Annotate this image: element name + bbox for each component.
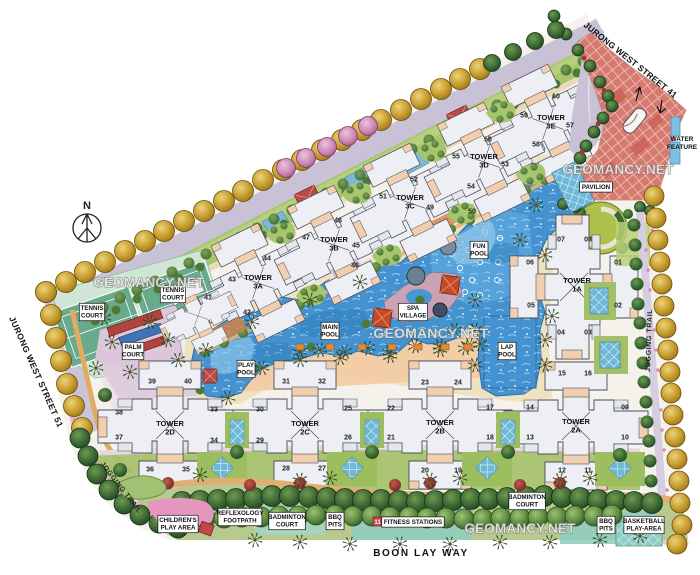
- svg-text:34: 34: [210, 438, 218, 445]
- svg-text:PITS: PITS: [328, 521, 342, 528]
- svg-text:27: 27: [318, 466, 326, 473]
- svg-text:14: 14: [526, 405, 534, 412]
- svg-text:POOL: POOL: [237, 369, 255, 376]
- svg-text:WATER: WATER: [671, 136, 694, 143]
- svg-text:BADMINTON: BADMINTON: [268, 514, 306, 521]
- svg-text:12: 12: [558, 468, 566, 475]
- svg-text:41: 41: [204, 295, 212, 302]
- svg-text:43: 43: [228, 277, 236, 284]
- svg-text:08: 08: [584, 237, 592, 244]
- svg-text:BOON LAY WAY: BOON LAY WAY: [373, 548, 469, 559]
- svg-text:GEOMANCY.NET: GEOMANCY.NET: [562, 162, 674, 177]
- svg-text:35: 35: [182, 467, 190, 474]
- svg-text:POOL: POOL: [321, 331, 339, 338]
- svg-text:GEOMANCY.NET: GEOMANCY.NET: [93, 275, 205, 290]
- svg-text:55: 55: [452, 154, 460, 161]
- svg-text:PITS: PITS: [599, 525, 613, 532]
- svg-text:COURT: COURT: [162, 294, 184, 301]
- svg-text:TENNIS: TENNIS: [81, 305, 104, 312]
- svg-text:29: 29: [256, 438, 264, 445]
- svg-text:05: 05: [527, 303, 535, 310]
- svg-text:GEOMANCY.NET: GEOMANCY.NET: [464, 521, 576, 536]
- svg-text:20: 20: [421, 468, 429, 475]
- svg-text:SPA: SPA: [407, 305, 420, 312]
- svg-text:GEOMANCY.NET: GEOMANCY.NET: [373, 325, 488, 341]
- svg-text:38: 38: [115, 410, 123, 417]
- svg-text:2A: 2A: [571, 426, 581, 435]
- svg-text:3D: 3D: [479, 161, 489, 170]
- svg-text:42: 42: [243, 310, 251, 317]
- svg-text:LAP: LAP: [501, 344, 513, 351]
- svg-text:04: 04: [557, 330, 565, 337]
- svg-text:3C: 3C: [405, 202, 415, 211]
- svg-text:3E: 3E: [546, 122, 555, 131]
- svg-text:PLAY-AREA: PLAY-AREA: [626, 525, 662, 532]
- svg-text:60: 60: [552, 94, 560, 101]
- svg-text:07: 07: [557, 237, 565, 244]
- svg-text:45: 45: [352, 243, 360, 250]
- svg-text:15: 15: [558, 371, 566, 378]
- svg-text:CHILDREN'S: CHILDREN'S: [159, 517, 197, 524]
- svg-text:PAVILION: PAVILION: [582, 184, 611, 191]
- svg-text:MAIN: MAIN: [322, 324, 338, 331]
- svg-text:50: 50: [468, 209, 476, 216]
- svg-text:2C: 2C: [300, 428, 310, 437]
- svg-text:30: 30: [256, 407, 264, 414]
- svg-text:36: 36: [146, 467, 154, 474]
- svg-text:POOL: POOL: [498, 351, 516, 358]
- svg-text:13: 13: [526, 435, 534, 442]
- svg-text:COURT: COURT: [122, 351, 144, 358]
- svg-text:FOOTPATH: FOOTPATH: [223, 517, 257, 524]
- svg-text:39: 39: [148, 379, 156, 386]
- svg-text:01: 01: [614, 260, 622, 267]
- svg-text:COURT: COURT: [516, 501, 538, 508]
- svg-text:44: 44: [263, 256, 271, 263]
- svg-text:FUN: FUN: [473, 243, 486, 250]
- svg-text:56: 56: [484, 137, 492, 144]
- svg-text:COURT: COURT: [81, 312, 103, 319]
- svg-text:23: 23: [421, 380, 429, 387]
- svg-text:PLAY AREA: PLAY AREA: [161, 524, 196, 531]
- svg-text:28: 28: [282, 466, 290, 473]
- svg-text:58: 58: [532, 142, 540, 149]
- svg-text:06: 06: [526, 260, 534, 267]
- svg-text:52: 52: [410, 177, 418, 184]
- svg-text:46: 46: [351, 263, 359, 270]
- svg-text:54: 54: [467, 184, 475, 191]
- svg-text:FITNESS STATIONS: FITNESS STATIONS: [384, 519, 442, 526]
- svg-text:BADMINTON: BADMINTON: [508, 494, 546, 501]
- svg-text:37: 37: [115, 435, 123, 442]
- svg-text:59: 59: [520, 113, 528, 120]
- svg-text:49: 49: [426, 205, 434, 212]
- svg-text:53: 53: [501, 162, 509, 169]
- svg-text:REFLEXOLOGY: REFLEXOLOGY: [217, 510, 265, 517]
- svg-text:10: 10: [621, 435, 629, 442]
- svg-text:18: 18: [486, 435, 494, 442]
- svg-text:VILLAGE: VILLAGE: [400, 312, 427, 319]
- svg-text:2D: 2D: [165, 428, 175, 437]
- svg-text:BBQ: BBQ: [328, 514, 342, 521]
- svg-text:31: 31: [282, 379, 290, 386]
- svg-text:3B: 3B: [329, 244, 339, 253]
- svg-text:32: 32: [318, 379, 326, 386]
- svg-text:PALM: PALM: [124, 344, 141, 351]
- svg-text:3A: 3A: [253, 282, 263, 291]
- svg-text:57: 57: [566, 123, 574, 130]
- svg-text:03: 03: [584, 330, 592, 337]
- svg-text:N: N: [83, 200, 91, 212]
- svg-text:40: 40: [184, 379, 192, 386]
- svg-text:33: 33: [210, 407, 218, 414]
- svg-text:21: 21: [387, 435, 395, 442]
- svg-text:24: 24: [454, 380, 462, 387]
- svg-text:POOL: POOL: [470, 250, 488, 257]
- svg-text:26: 26: [344, 435, 352, 442]
- svg-text:11: 11: [584, 468, 592, 475]
- svg-text:19: 19: [454, 468, 462, 475]
- svg-text:COURT: COURT: [276, 521, 298, 528]
- svg-text:PLAY: PLAY: [238, 362, 255, 369]
- svg-text:BBQ: BBQ: [599, 518, 613, 525]
- svg-text:02: 02: [614, 303, 622, 310]
- svg-text:25: 25: [344, 406, 352, 413]
- svg-text:47: 47: [302, 235, 310, 242]
- svg-text:09: 09: [621, 405, 629, 412]
- svg-text:17: 17: [486, 405, 494, 412]
- svg-text:BASKETBALL: BASKETBALL: [623, 518, 665, 525]
- svg-text:2B: 2B: [435, 427, 445, 436]
- svg-text:11: 11: [374, 520, 381, 526]
- svg-text:1A: 1A: [572, 285, 582, 294]
- svg-text:FEATURE: FEATURE: [667, 144, 698, 151]
- svg-text:48: 48: [334, 218, 342, 225]
- svg-text:51: 51: [379, 194, 387, 201]
- svg-text:16: 16: [584, 371, 592, 378]
- svg-text:22: 22: [387, 406, 395, 413]
